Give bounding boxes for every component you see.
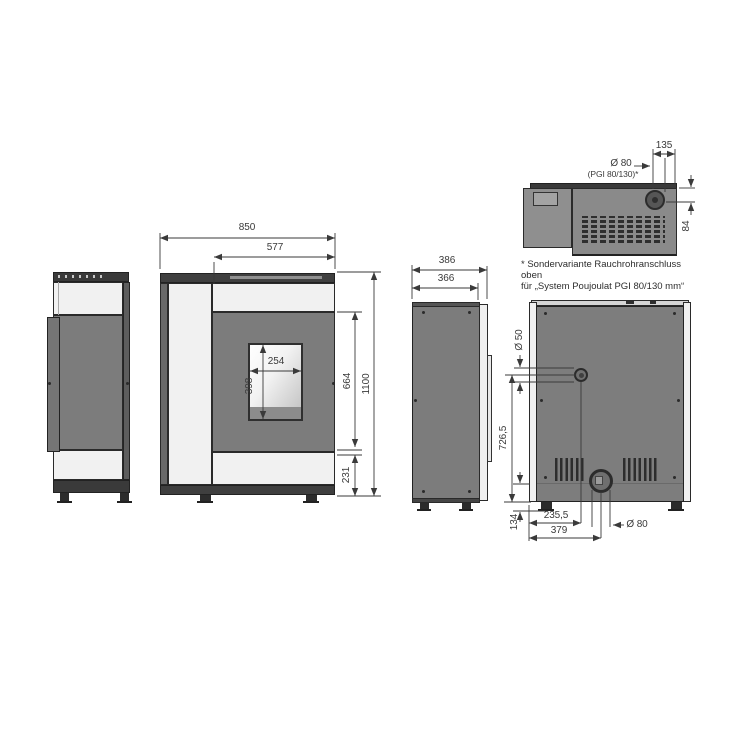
- footnote: * Sondervariante Rauchrohranschluss oben…: [521, 259, 701, 293]
- right-light-strip: [683, 302, 691, 502]
- dim-door-height: 664: [343, 373, 353, 389]
- left-edge-strip: [160, 283, 168, 485]
- base-plinth: [160, 485, 335, 495]
- footnote-line-1: * Sondervariante Rauchrohranschluss oben: [521, 259, 701, 281]
- left-foot-pad: [417, 509, 431, 511]
- dim-window-width: 254: [268, 357, 284, 367]
- dim-front-door-width: 577: [267, 243, 283, 253]
- display-window: [533, 192, 558, 206]
- dim-flue-diameter-top: Ø 80: [610, 159, 631, 169]
- top-cap-recess: [230, 276, 322, 279]
- right-foot-pad: [303, 501, 319, 503]
- top-edge: [412, 302, 480, 307]
- base-plinth: [53, 480, 130, 493]
- rear-view: [529, 300, 691, 512]
- technical-drawing-canvas: 850 577 254 398 664 1100 231 386 366 135…: [0, 0, 750, 750]
- top-view: [523, 183, 695, 255]
- screw-top-right: [468, 311, 471, 314]
- door-handle-dot: [48, 382, 51, 385]
- door-edge-bar: [487, 355, 492, 462]
- dim-total-height: 1100: [362, 373, 372, 394]
- dim-body-depth: 366: [438, 274, 454, 284]
- dim-base-height: 231: [342, 467, 352, 483]
- screw-mid-left: [414, 399, 417, 402]
- body-panel: [412, 302, 480, 503]
- screw-bottom-right: [673, 476, 676, 479]
- screw-bottom-left: [422, 490, 425, 493]
- footnote-line-2: für „System Poujoulat PGI 80/130 mm“: [521, 281, 701, 292]
- right-foot-pad: [459, 509, 473, 511]
- lower-light-band: [53, 450, 123, 480]
- edge-handle-dot: [126, 382, 129, 385]
- latch-mark-2: [650, 301, 656, 304]
- screw-mid-left: [540, 399, 543, 402]
- left-foot-pad: [57, 501, 72, 503]
- screw-mid-right: [677, 399, 680, 402]
- side-panel: [53, 315, 123, 450]
- screw-top-left: [544, 312, 547, 315]
- upper-light-band: [53, 282, 123, 315]
- dim-air-diameter: Ø 50: [515, 329, 525, 350]
- dim-air-center-height: 726,5: [499, 426, 509, 451]
- vent-slots-right: [623, 458, 658, 481]
- window-glass: [250, 345, 301, 407]
- door-bottom-band: [212, 452, 335, 485]
- convection-grille: [582, 216, 665, 243]
- dim-window-height: 398: [245, 378, 255, 394]
- left-foot: [60, 493, 69, 501]
- upper-band-divider: [58, 282, 59, 315]
- left-light-column: [168, 283, 212, 485]
- screw-top-left: [422, 311, 425, 314]
- right-foot: [120, 493, 129, 501]
- side-left-view: [47, 272, 130, 503]
- front-edge-strip: [123, 282, 130, 480]
- dim-air-center-offset: 235,5: [544, 511, 569, 521]
- right-foot-pad: [117, 501, 132, 503]
- screw-bottom-right: [468, 490, 471, 493]
- dim-flue-offset-top: 135: [656, 141, 672, 151]
- dim-flue-variant: (PGI 80/130)*: [588, 170, 639, 179]
- side-profile-view: [412, 302, 492, 514]
- control-panel-buttons: [58, 275, 104, 278]
- dim-flue-center-offset: 379: [551, 526, 567, 536]
- dim-front-total-width: 850: [239, 223, 255, 233]
- flue-outlet-rear-opening: [595, 476, 603, 485]
- door-handle-dot: [332, 382, 335, 385]
- dim-flue-diameter-rear: Ø 80: [626, 520, 647, 530]
- latch-mark-1: [626, 301, 634, 304]
- air-intake-port-center: [579, 373, 584, 378]
- dim-flue-center-depth: 84: [682, 221, 692, 232]
- vent-slots-left: [555, 458, 585, 481]
- flue-outlet-top-center: [652, 197, 658, 203]
- screw-bottom-left: [544, 476, 547, 479]
- left-foot-pad: [197, 501, 213, 503]
- screw-top-right: [673, 312, 676, 315]
- fire-window: [248, 343, 303, 421]
- dim-rear-base-height: 134: [510, 514, 520, 530]
- dim-total-depth: 386: [439, 256, 455, 266]
- door-top-band: [212, 283, 335, 312]
- right-foot-pad: [668, 509, 684, 511]
